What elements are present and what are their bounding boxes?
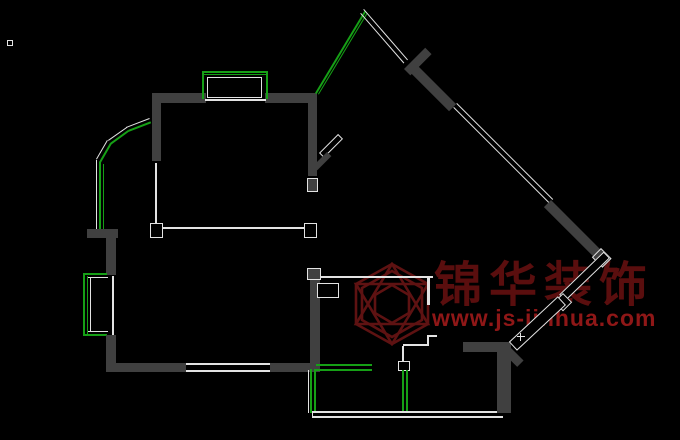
- green-window-line: [318, 13, 367, 94]
- thin-wall-line: [453, 107, 550, 204]
- green-window-line: [128, 121, 151, 131]
- green-window-line: [83, 273, 107, 275]
- thin-wall-line: [88, 277, 108, 278]
- thin-wall-line: [186, 370, 270, 372]
- thin-wall-line: [205, 99, 266, 101]
- wall-segment: [106, 363, 186, 372]
- wall-segment: [406, 61, 456, 111]
- thin-wall-line: [520, 333, 521, 341]
- thin-wall-line: [456, 103, 553, 200]
- wall-end-cap: [307, 268, 321, 280]
- thin-wall-line: [152, 227, 317, 229]
- white-outline-box: [398, 361, 410, 371]
- green-window-line: [202, 74, 268, 75]
- green-window-line: [316, 369, 372, 371]
- green-window-line: [202, 71, 204, 99]
- thin-wall-line: [517, 336, 525, 337]
- thin-wall-line: [186, 363, 270, 365]
- thin-wall-line: [312, 411, 503, 413]
- floorplan-linework: [0, 0, 680, 440]
- wall-segment: [106, 238, 116, 275]
- white-outline-box: [207, 77, 262, 98]
- thin-wall-line: [155, 163, 157, 226]
- white-outline-box: [319, 134, 343, 158]
- green-window-line: [99, 162, 101, 237]
- thin-wall-line: [312, 411, 313, 418]
- green-window-line: [99, 143, 112, 163]
- white-outline-box: [509, 296, 566, 350]
- white-outline-box: [559, 252, 610, 302]
- thin-wall-line: [403, 344, 429, 346]
- thin-wall-line: [90, 278, 91, 332]
- white-outline-box: [7, 40, 13, 46]
- green-window-line: [310, 369, 312, 413]
- thin-wall-line: [88, 331, 108, 332]
- green-window-line: [87, 276, 88, 334]
- wall-segment: [152, 93, 161, 161]
- thin-wall-line: [312, 416, 503, 418]
- green-window-line: [314, 369, 316, 413]
- white-outline-box: [317, 283, 339, 298]
- thin-wall-line: [427, 278, 430, 305]
- green-window-line: [316, 364, 372, 366]
- thin-wall-line: [112, 276, 114, 335]
- green-window-line: [406, 370, 408, 413]
- thin-wall-line: [320, 276, 433, 278]
- thin-wall-line: [363, 9, 408, 60]
- green-window-line: [103, 164, 104, 237]
- green-window-line: [315, 11, 366, 94]
- thin-wall-line: [96, 160, 97, 237]
- white-outline-box: [304, 223, 317, 238]
- green-window-line: [202, 71, 268, 73]
- green-window-line: [83, 334, 107, 336]
- thin-wall-line: [360, 13, 404, 63]
- green-window-line: [266, 71, 268, 99]
- wall-segment: [87, 229, 118, 238]
- cad-canvas: 锦华装饰 www.js-jinhua.com: [0, 0, 680, 440]
- green-window-line: [83, 273, 85, 336]
- green-window-line: [402, 370, 404, 413]
- wall-segment: [544, 200, 603, 259]
- thin-wall-line: [308, 370, 309, 413]
- white-outline-box: [150, 223, 163, 238]
- wall-end-cap: [307, 178, 318, 192]
